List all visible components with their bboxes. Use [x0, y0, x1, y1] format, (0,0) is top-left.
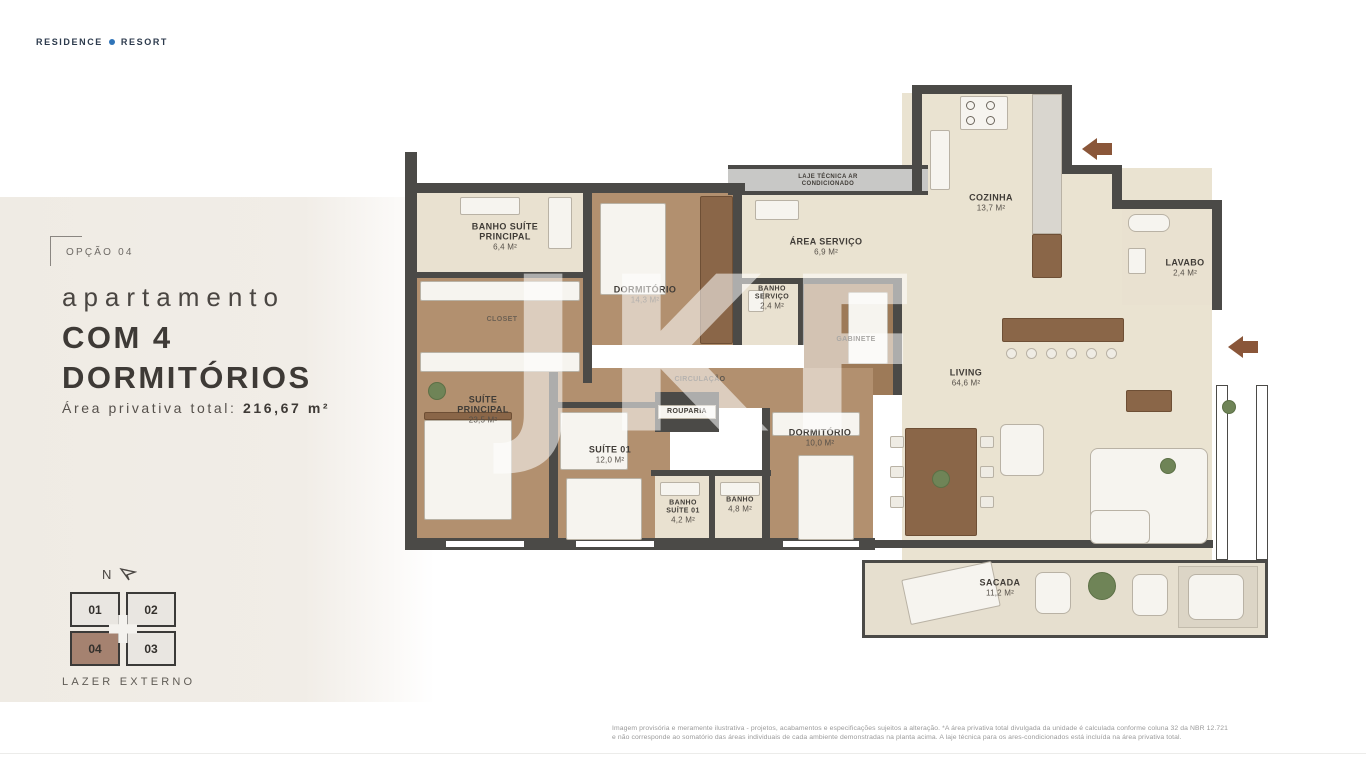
plant	[1088, 572, 1116, 600]
bed	[424, 420, 512, 520]
room-label-cozinha: COZINHA 13,7 m²	[951, 193, 1031, 214]
room-name: BANHO SERVIÇO	[755, 286, 789, 301]
room-name: BANHO SUÍTE PRINCIPAL	[472, 222, 538, 242]
room-name: ÁREA SERVIÇO	[790, 237, 863, 247]
keyplan-unit-01-label: 01	[88, 603, 101, 617]
room-area: 10,0 m²	[780, 439, 860, 449]
keyplan-unit-04-label: 04	[88, 642, 101, 656]
stool	[1046, 348, 1057, 359]
plant	[1222, 400, 1236, 414]
balcony-chair	[1132, 574, 1168, 616]
dining-chair	[980, 466, 994, 478]
keyplan-unit-04: 04	[70, 631, 120, 666]
sink-counter	[720, 482, 760, 496]
disclaimer: Imagem provisória e meramente ilustrativ…	[612, 725, 1264, 742]
keyplan-unit-01: 01	[70, 592, 120, 627]
room-label-sacada: SACADA 11,2 m²	[965, 578, 1035, 599]
closet-shelves	[420, 281, 580, 301]
private-area-line: Área privativa total: 216,67 m²	[62, 400, 330, 416]
balcony-sofa	[1188, 574, 1244, 620]
toilet	[1128, 248, 1146, 274]
plant	[1160, 458, 1176, 474]
wall-segment	[549, 368, 558, 543]
bed	[798, 455, 854, 540]
wall-segment	[583, 193, 592, 383]
wall-segment	[405, 152, 417, 543]
closet-shelves	[420, 352, 580, 372]
room-area: 6,4 m²	[465, 243, 545, 253]
room-label-circulacao: CIRCULAÇÃO	[655, 376, 745, 384]
title-line-2: DORMITÓRIOS	[62, 358, 312, 398]
room-name: LAJE TÉCNICA AR CONDICIONADO	[798, 174, 858, 187]
brand-logo: RESIDENCE RESORT	[36, 37, 168, 47]
dining-chair	[980, 496, 994, 508]
room-area: 14,3 m²	[605, 296, 685, 306]
footer-strip	[0, 753, 1366, 768]
wall-segment	[912, 85, 1072, 94]
kitchen-sink-counter	[930, 130, 950, 190]
wardrobe	[700, 196, 733, 344]
wall-segment	[1112, 200, 1222, 209]
room-label-suite-01: SUÍTE 01 12,0 m²	[575, 445, 645, 466]
room-label-rouparia: ROUPARIA	[658, 405, 716, 419]
wall-segment	[733, 193, 742, 345]
room-label-banho: BANHO 4,8 m²	[718, 497, 762, 514]
room-area: 13,7 m²	[951, 204, 1031, 214]
room-label-banho-suite-principal: BANHO SUÍTE PRINCIPAL 6,4 m²	[465, 222, 545, 253]
room-name: DORMITÓRIO	[789, 428, 852, 438]
bed	[566, 478, 642, 540]
room-name: SUÍTE PRINCIPAL	[457, 395, 508, 415]
room-name: LAVABO	[1165, 258, 1204, 268]
wall-segment	[1062, 85, 1072, 173]
keyplan-unit-02: 02	[126, 592, 176, 627]
room-label-dormitorio-2: DORMITÓRIO 10,0 m²	[780, 428, 860, 449]
room-name: COZINHA	[969, 193, 1013, 203]
room-label-suite-principal: SUÍTE PRINCIPAL 23,5 m²	[448, 395, 518, 426]
sofa-chaise	[1090, 510, 1150, 544]
room-name: LIVING	[950, 368, 982, 378]
stool	[1106, 348, 1117, 359]
room-name: CIRCULAÇÃO	[674, 376, 725, 383]
room-label-laje-tecnica: LAJE TÉCNICA AR CONDICIONADO	[789, 174, 867, 188]
dining-chair	[890, 496, 904, 508]
island-counter	[1002, 318, 1124, 342]
keyplan-unit-03-label: 03	[144, 642, 157, 656]
keyplan-unit-03: 03	[126, 631, 176, 666]
bed	[600, 203, 666, 295]
desk	[848, 292, 888, 364]
lavabo-sink	[1128, 214, 1170, 232]
room-area: 64,6 m²	[926, 379, 1006, 389]
disclaimer-line-1: Imagem provisória e meramente ilustrativ…	[612, 725, 1264, 734]
burner-icon	[966, 101, 975, 110]
plant	[428, 382, 446, 400]
room-name: SUÍTE 01	[589, 445, 631, 455]
apartment-subtitle: apartamento	[62, 282, 285, 313]
dining-chair	[890, 466, 904, 478]
stool	[1066, 348, 1077, 359]
window-band	[1256, 385, 1268, 560]
keyplan-caption: LAZER EXTERNO	[62, 676, 195, 688]
stool	[1026, 348, 1037, 359]
stool	[1006, 348, 1017, 359]
title-line-1: COM 4	[62, 318, 173, 358]
keyplan: 01 02 04 03	[62, 592, 186, 670]
wall-segment	[1212, 200, 1222, 310]
north-arrow-icon	[119, 566, 137, 582]
dining-chair	[890, 436, 904, 448]
room-area: 2,4 m²	[1150, 269, 1220, 279]
room-label-banho-suite-01: BANHO SUÍTE 01 4,2 m²	[658, 500, 708, 525]
room-name: SACADA	[980, 578, 1021, 588]
room-area: 23,5 m²	[448, 416, 518, 426]
room-name: BANHO SUÍTE 01	[666, 500, 700, 515]
wall-segment	[798, 283, 804, 345]
room-name: DORMITÓRIO	[614, 285, 677, 295]
room-area: 4,8 m²	[718, 506, 762, 514]
window	[782, 540, 860, 548]
keyplan-unit-02-label: 02	[144, 603, 157, 617]
burner-icon	[966, 116, 975, 125]
sideboard	[1126, 390, 1172, 412]
north-label: N	[102, 567, 113, 582]
room-name: BANHO	[726, 497, 754, 504]
page: RESIDENCE RESORT OPÇÃO 04 apartamento CO…	[0, 0, 1366, 768]
compass: N	[102, 566, 137, 582]
room-label-lavabo: LAVABO 2,4 m²	[1150, 258, 1220, 279]
disclaimer-line-2: e não corresponde ao somatório das áreas…	[612, 734, 1264, 743]
window	[575, 540, 655, 548]
room-label-banho-servico: BANHO SERVIÇO 2,4 m²	[749, 286, 795, 311]
window	[445, 540, 525, 548]
wall-segment	[742, 278, 902, 284]
wall-segment	[709, 475, 715, 543]
room-label-closet: CLOSET	[467, 316, 537, 324]
armchair	[1000, 424, 1044, 476]
brand-right-text: RESORT	[121, 37, 168, 47]
fridge	[1032, 234, 1062, 278]
brand-dot-icon	[109, 39, 115, 45]
room-label-area-servico: ÁREA SERVIÇO 6,9 m²	[776, 237, 876, 258]
option-label: OPÇÃO 04	[66, 247, 134, 258]
wall-segment	[405, 183, 745, 193]
room-area: 4,2 m²	[658, 517, 708, 525]
sink-counter	[660, 482, 700, 496]
burner-icon	[986, 101, 995, 110]
wall-segment	[893, 278, 902, 395]
stool	[1086, 348, 1097, 359]
burner-icon	[986, 116, 995, 125]
dining-chair	[980, 436, 994, 448]
room-area: 2,4 m²	[749, 303, 795, 311]
private-area-label: Área privativa total:	[62, 400, 236, 416]
room-area: 12,0 m²	[575, 456, 645, 466]
room-label-living: LIVING 64,6 m²	[926, 368, 1006, 389]
washer-dryer	[755, 200, 799, 220]
kitchen-counter	[1032, 94, 1062, 234]
bathtub	[548, 197, 572, 249]
room-area: 11,2 m²	[965, 589, 1035, 599]
brand-left-text: RESIDENCE	[36, 37, 103, 47]
wall-segment	[417, 272, 583, 278]
room-name: GABINETE	[836, 336, 875, 343]
room-name: ROUPARIA	[667, 408, 707, 415]
plant	[932, 470, 950, 488]
double-sink	[460, 197, 520, 215]
room-label-dormitorio-1: DORMITÓRIO 14,3 m²	[605, 285, 685, 306]
private-area-value: 216,67 m²	[243, 400, 330, 416]
room-area: 6,9 m²	[776, 248, 876, 258]
wall-segment	[912, 93, 922, 195]
balcony-chair	[1035, 572, 1071, 614]
room-label-gabinete: GABINETE	[821, 336, 891, 344]
room-name: CLOSET	[487, 316, 518, 323]
